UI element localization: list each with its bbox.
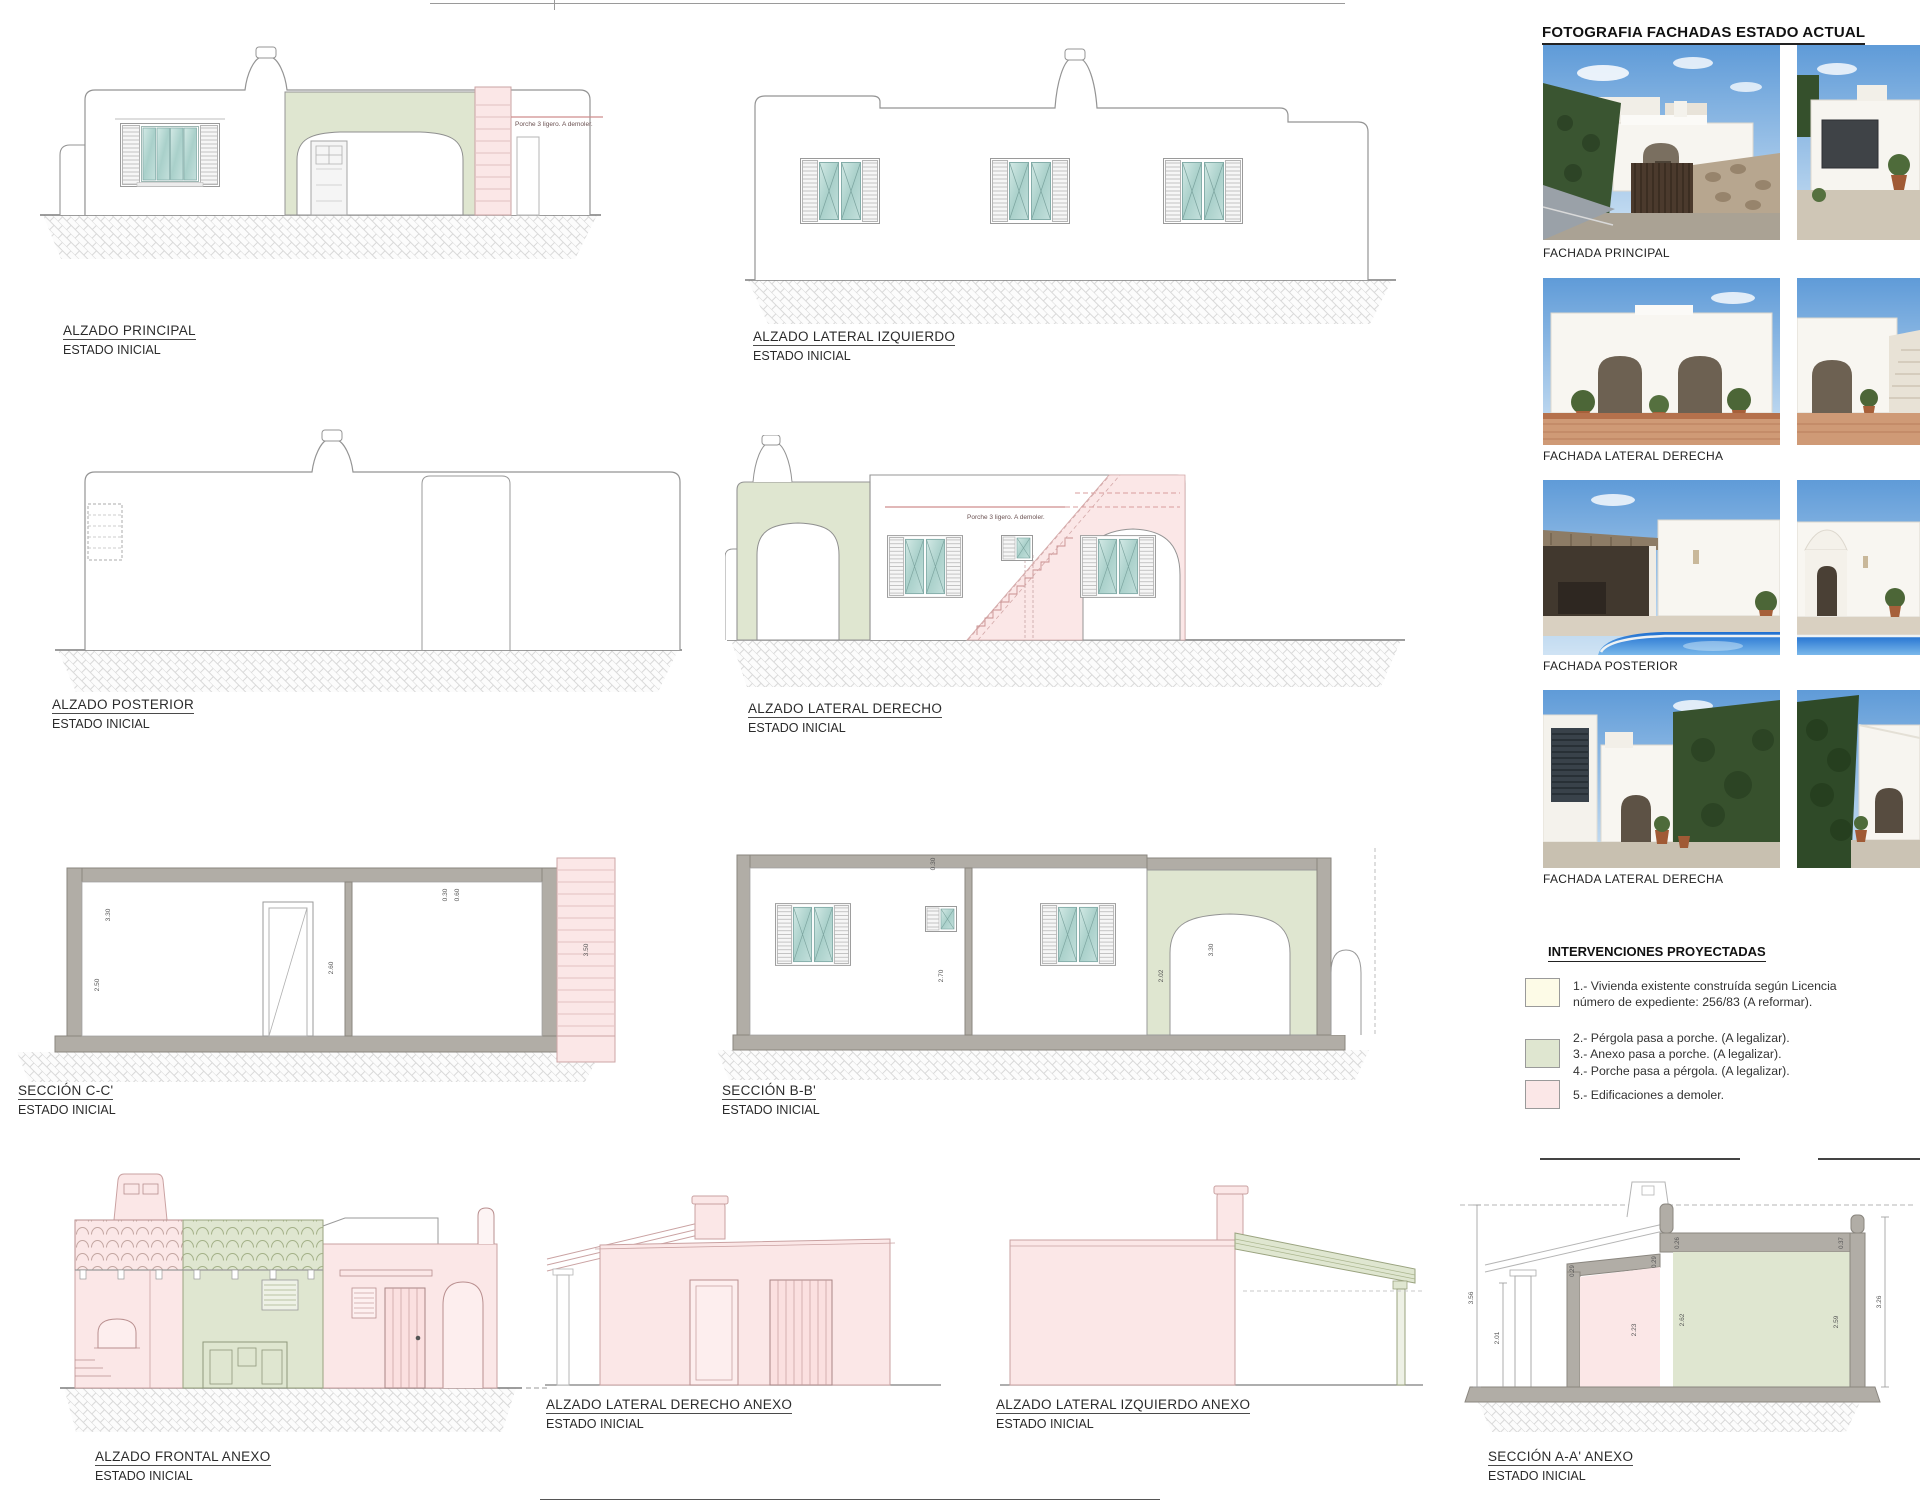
chimney-cap: [322, 430, 342, 441]
dimension-label: 0.30: [442, 888, 449, 901]
legend-text: 5.- Edificaciones a demoler.: [1573, 1087, 1724, 1103]
photo-fachada-posterior: [1543, 480, 1780, 655]
drawing-subtitle: ESTADO INICIAL: [722, 1103, 820, 1117]
window-section: [775, 904, 850, 966]
drawing-subtitle: ESTADO INICIAL: [753, 349, 955, 363]
dimension-label: 2.62: [1679, 1313, 1686, 1326]
pot: [1678, 836, 1690, 848]
door-knob: [416, 1336, 421, 1341]
pergola-post: [1515, 1276, 1531, 1387]
window: [1164, 159, 1243, 224]
side-post: [517, 137, 539, 215]
room-pink: [1580, 1267, 1660, 1387]
drawing-alzado-frontal-anexo: [60, 1170, 550, 1440]
path: [1543, 842, 1780, 868]
chimney-cap: [692, 1196, 728, 1204]
photo-fachada-lateral-derecha-3: [1543, 690, 1780, 868]
legend-swatch-pink: [1525, 1080, 1560, 1109]
photo-label: FACHADA LATERAL DERECHA: [1543, 449, 1723, 463]
drawing-title: ALZADO LATERAL DERECHO ANEXO: [546, 1397, 792, 1414]
window: [1080, 536, 1155, 598]
wall-lamp: [1863, 556, 1868, 568]
annex-roof-slab: [1147, 858, 1331, 870]
dimension-label: 2.60: [328, 961, 335, 974]
dimension-label: 0.26: [1675, 1237, 1681, 1249]
legend-text: 1.- Vivienda existente construída según …: [1573, 978, 1837, 994]
pool: [1797, 635, 1920, 655]
photo-fachada-posterior-2: [1797, 480, 1920, 655]
window: [801, 159, 880, 224]
window-section: [1040, 904, 1115, 966]
window: [991, 159, 1070, 224]
ground-hatch: [748, 280, 1392, 324]
drawing-subtitle: ESTADO INICIAL: [546, 1417, 792, 1431]
chimney-cap: [1065, 49, 1085, 60]
arch-opening: [1875, 788, 1903, 833]
pergola-post: [557, 1275, 569, 1385]
drawing-subtitle: ESTADO INICIAL: [996, 1417, 1250, 1431]
wall-section: [1850, 1233, 1865, 1387]
parapet: [1851, 1215, 1864, 1233]
label-alzado-lateral-derecho: ALZADO LATERAL DERECHO ESTADO INICIAL: [748, 700, 942, 735]
label-alzado-lateral-derecho-anexo: ALZADO LATERAL DERECHO ANEXO ESTADO INIC…: [546, 1396, 792, 1431]
chimney-cap: [256, 47, 276, 58]
left-wing: [60, 145, 85, 215]
dimension-label: 3.56: [1468, 1291, 1475, 1304]
partition-wall: [345, 882, 352, 1036]
annotation-label: Porche 3 ligero. A demoler.: [515, 121, 593, 128]
house-outline: [85, 440, 680, 650]
partition-wall: [965, 868, 972, 1035]
legend-swatch-green: [1525, 1039, 1560, 1068]
arched-window: [98, 1319, 136, 1348]
plant: [1888, 154, 1910, 176]
floor-slab: [55, 1036, 575, 1052]
chimney: [695, 1201, 725, 1239]
photos-panel-title: FOTOGRAFIA FACHADAS ESTADO ACTUAL: [1542, 24, 1865, 45]
chimney: [1217, 1190, 1243, 1240]
label-alzado-lateral-izquierdo-anexo: ALZADO LATERAL IZQUIERDO ANEXO ESTADO IN…: [996, 1396, 1250, 1431]
gate: [1631, 163, 1693, 215]
beam: [340, 1270, 432, 1276]
drawing-title: ALZADO LATERAL IZQUIERDO ANEXO: [996, 1397, 1250, 1414]
roofline: [323, 1218, 438, 1244]
dimension-label: 2.02: [1158, 969, 1165, 982]
drawing-title: ALZADO PRINCIPAL: [63, 323, 196, 340]
outdoor-kitchen: [1558, 582, 1606, 614]
wall-section: [1567, 1272, 1580, 1387]
photo-fachada-lateral-derecha: [1543, 278, 1780, 445]
titleblock-line: [1540, 1158, 1740, 1160]
ground-hatch: [717, 1050, 1369, 1080]
arch-opening: [1678, 356, 1722, 413]
path: [1851, 840, 1920, 868]
drawing-alzado-lateral-izquierdo-anexo: [995, 1185, 1425, 1400]
parapet: [1660, 1204, 1673, 1233]
post: [1649, 546, 1656, 616]
sheet-edge-mark-bottom: [540, 1499, 1160, 1500]
label-seccion-cc: SECCIÓN C-C' ESTADO INICIAL: [18, 1082, 116, 1117]
dimension-label: 0.37: [1839, 1237, 1845, 1249]
photo-label: FACHADA POSTERIOR: [1543, 659, 1678, 673]
drawing-seccion-aa-anexo: 3.56 2.01 0.29 0.29 2.23 0.26 2.62 0.37 …: [1460, 1180, 1920, 1440]
drawing-alzado-lateral-derecho: Porche 3 ligero. A demoler.: [725, 435, 1415, 705]
drawing-title: SECCIÓN C-C': [18, 1083, 113, 1100]
drawing-title: ALZADO POSTERIOR: [52, 697, 194, 714]
dimension-label: 3.26: [1876, 1295, 1883, 1308]
porch-arch: [757, 523, 839, 640]
legend-title: INTERVENCIONES PROYECTADAS: [1548, 944, 1766, 962]
dimension-label: 2.23: [1631, 1323, 1638, 1336]
arch-opening: [1598, 356, 1642, 413]
louvered-window: [1551, 728, 1589, 802]
arch-door: [1621, 795, 1651, 842]
side-stub: [725, 549, 737, 640]
label-alzado-principal: ALZADO PRINCIPAL ESTADO INICIAL: [63, 322, 196, 357]
green-door: [203, 1342, 287, 1388]
dimension-label: 3.50: [583, 943, 590, 956]
drawing-title: ALZADO FRONTAL ANEXO: [95, 1449, 271, 1466]
label-alzado-lateral-izquierdo: ALZADO LATERAL IZQUIERDO ESTADO INICIAL: [753, 328, 955, 363]
photo-label: FACHADA LATERAL DERECHA: [1543, 872, 1723, 886]
photo-fachada-lateral-derecha-2: [1797, 278, 1920, 445]
label-alzado-frontal-anexo: ALZADO FRONTAL ANEXO ESTADO INICIAL: [95, 1448, 271, 1483]
small-window: [1002, 536, 1033, 561]
dimension-label: 0.60: [454, 888, 461, 901]
ground-hatch: [1478, 1402, 1860, 1432]
drawing-subtitle: ESTADO INICIAL: [748, 721, 942, 735]
photo-fachada-principal-2: [1797, 45, 1920, 240]
hedge: [1797, 695, 1859, 868]
door: [690, 1280, 738, 1385]
legend-text: 3.- Anexo pasa a porche. (A legalizar).: [1573, 1046, 1790, 1062]
plank-door: [770, 1280, 832, 1385]
legend-text: número de expediente: 256/83 (A reformar…: [1573, 994, 1837, 1010]
wall-section: [67, 868, 82, 1036]
legend-text: 4.- Porche pasa a pérgola. (A legalizar)…: [1573, 1063, 1790, 1079]
drawing-title: SECCIÓN A-A' ANEXO: [1488, 1449, 1633, 1466]
arch-opening: [1812, 360, 1852, 413]
annex-body-pink: [1010, 1240, 1235, 1385]
ground-hatch: [731, 640, 1401, 687]
plant: [1885, 588, 1905, 608]
plant: [1854, 816, 1868, 830]
drawing-subtitle: ESTADO INICIAL: [95, 1469, 271, 1483]
ground-hatch: [17, 1052, 601, 1082]
titleblock-line: [1818, 1158, 1920, 1160]
annex-body-pink: [600, 1239, 890, 1385]
drawing-seccion-cc: 3.30 2.50 2.60 0.30 0.60 3.50: [15, 840, 635, 1085]
pot: [1855, 830, 1867, 842]
chimney: [753, 443, 792, 482]
stair-to-demolish: [475, 87, 511, 215]
dimension-label: 2.70: [938, 969, 945, 982]
drawing-alzado-lateral-izquierdo: [740, 40, 1400, 340]
label-seccion-aa-anexo: SECCIÓN A-A' ANEXO ESTADO INICIAL: [1488, 1448, 1633, 1483]
dimension-label: 2.50: [94, 978, 101, 991]
wall-lamp: [1693, 550, 1699, 564]
wall-section: [542, 868, 557, 1036]
small-window: [926, 907, 957, 932]
drawing-alzado-posterior: [50, 420, 690, 710]
dark-window: [1822, 120, 1878, 168]
wall-section: [737, 855, 750, 1035]
pergola-post: [1397, 1289, 1405, 1385]
legend-item-legalize: 2.- Pérgola pasa a porche. (A legalizar)…: [1525, 1030, 1920, 1079]
chimney-cap: [762, 435, 780, 445]
drawing-subtitle: ESTADO INICIAL: [1488, 1469, 1633, 1483]
wall-section: [1317, 858, 1331, 1035]
chimney-pipe: [478, 1208, 494, 1244]
dimension-label: 3.30: [1208, 943, 1215, 956]
dimension-label: 0.29: [1652, 1256, 1658, 1268]
window: [887, 536, 962, 598]
patio-floor: [1797, 617, 1920, 635]
slab-section: [1660, 1233, 1864, 1252]
hedge: [1673, 700, 1780, 842]
fold-mark: [554, 0, 555, 10]
plant: [1654, 816, 1670, 832]
sheet-edge-mark: [430, 3, 1345, 4]
drawing-subtitle: ESTADO INICIAL: [52, 717, 194, 731]
pot: [1655, 830, 1669, 844]
drawing-title: ALZADO LATERAL DERECHO: [748, 701, 942, 718]
dimension-label: 2.01: [1494, 1331, 1501, 1344]
legend-item-existing: 1.- Vivienda existente construída según …: [1525, 978, 1920, 1011]
window: [121, 124, 220, 187]
floor-slab: [733, 1035, 1345, 1050]
plant: [1860, 389, 1878, 407]
stair-below-grade: [557, 1036, 615, 1062]
roof-slab: [737, 855, 1147, 868]
legend-swatch-cream: [1525, 978, 1560, 1007]
base-slab: [1465, 1387, 1880, 1402]
drawing-title: ALZADO LATERAL IZQUIERDO: [753, 329, 955, 346]
dark-door: [1817, 566, 1837, 616]
dimension-label: 2.59: [1833, 1315, 1840, 1328]
dimension-label: 0.30: [930, 857, 937, 870]
pergola-green: [1235, 1233, 1415, 1283]
room-green: [1673, 1252, 1850, 1387]
dimension-label: 0.29: [1570, 1265, 1576, 1277]
chimney-to-demolish: [114, 1174, 167, 1220]
plant: [1727, 388, 1751, 412]
outer-bump: [1331, 950, 1361, 1035]
post-capital: [553, 1269, 573, 1275]
label-alzado-posterior: ALZADO POSTERIOR ESTADO INICIAL: [52, 696, 194, 731]
ground-hatch: [43, 215, 597, 259]
photo-fachada-lateral-derecha-4: [1797, 690, 1920, 868]
annotation-label: Porche 3 ligero. A demoler.: [967, 514, 1045, 521]
arched-opening: [443, 1282, 483, 1388]
legend-text: 2.- Pérgola pasa a porche. (A legalizar)…: [1573, 1030, 1790, 1046]
drawing-alzado-principal: Porche 3 ligero. A demoler.: [35, 45, 635, 335]
drawing-alzado-lateral-derecho-anexo: [545, 1195, 945, 1395]
photo-label: FACHADA PRINCIPAL: [1543, 246, 1670, 260]
pot: [1889, 606, 1901, 618]
ground-hatch: [58, 650, 678, 692]
chimney-cap: [1214, 1186, 1248, 1194]
legend-item-demolish: 5.- Edificaciones a demoler.: [1525, 1080, 1920, 1109]
roof-slab: [67, 868, 557, 882]
photo-fachada-principal: [1543, 45, 1780, 240]
plant: [1755, 591, 1777, 613]
door-section: [263, 902, 313, 1036]
label-seccion-bb: SECCIÓN B-B' ESTADO INICIAL: [722, 1082, 820, 1117]
ground-hatch: [64, 1388, 516, 1432]
drawing-subtitle: ESTADO INICIAL: [63, 343, 196, 357]
drawing-seccion-bb: 0.30 2.70 2.02 3.30: [715, 838, 1415, 1090]
dimension-label: 3.30: [105, 908, 112, 921]
post-capital: [1510, 1270, 1536, 1276]
terracotta-floor: [1797, 413, 1920, 445]
drawing-subtitle: ESTADO INICIAL: [18, 1103, 116, 1117]
drawing-title: SECCIÓN B-B': [722, 1083, 816, 1100]
plant: [1571, 390, 1595, 414]
annex-arch: [1170, 914, 1290, 1035]
bracket: [1393, 1281, 1407, 1289]
stairs: [1889, 330, 1920, 413]
plan-sheet: { "colors": { "accent_green": "#dfe6d0",…: [0, 0, 1920, 1508]
